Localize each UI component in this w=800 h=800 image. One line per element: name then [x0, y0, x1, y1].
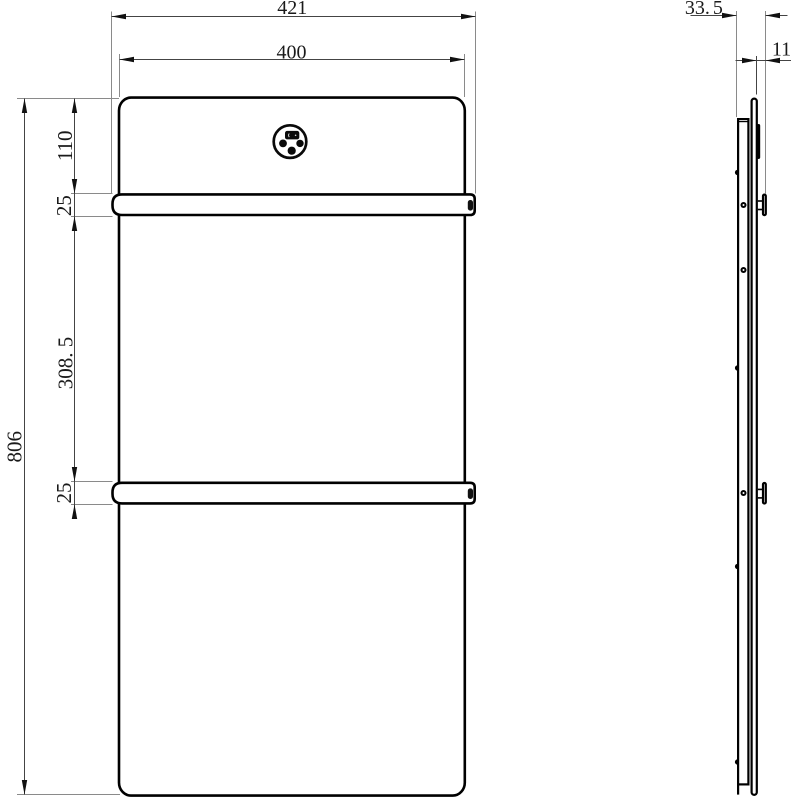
svg-text:25: 25	[52, 483, 76, 504]
svg-text:421: 421	[277, 0, 307, 19]
svg-text:110: 110	[53, 130, 77, 161]
svg-text:400: 400	[277, 42, 307, 64]
svg-text:25: 25	[52, 195, 76, 216]
svg-text:308. 5: 308. 5	[53, 337, 77, 390]
svg-text:33.5: 33.5	[685, 0, 723, 19]
svg-text:11: 11	[772, 39, 791, 61]
svg-text:806: 806	[3, 431, 27, 463]
